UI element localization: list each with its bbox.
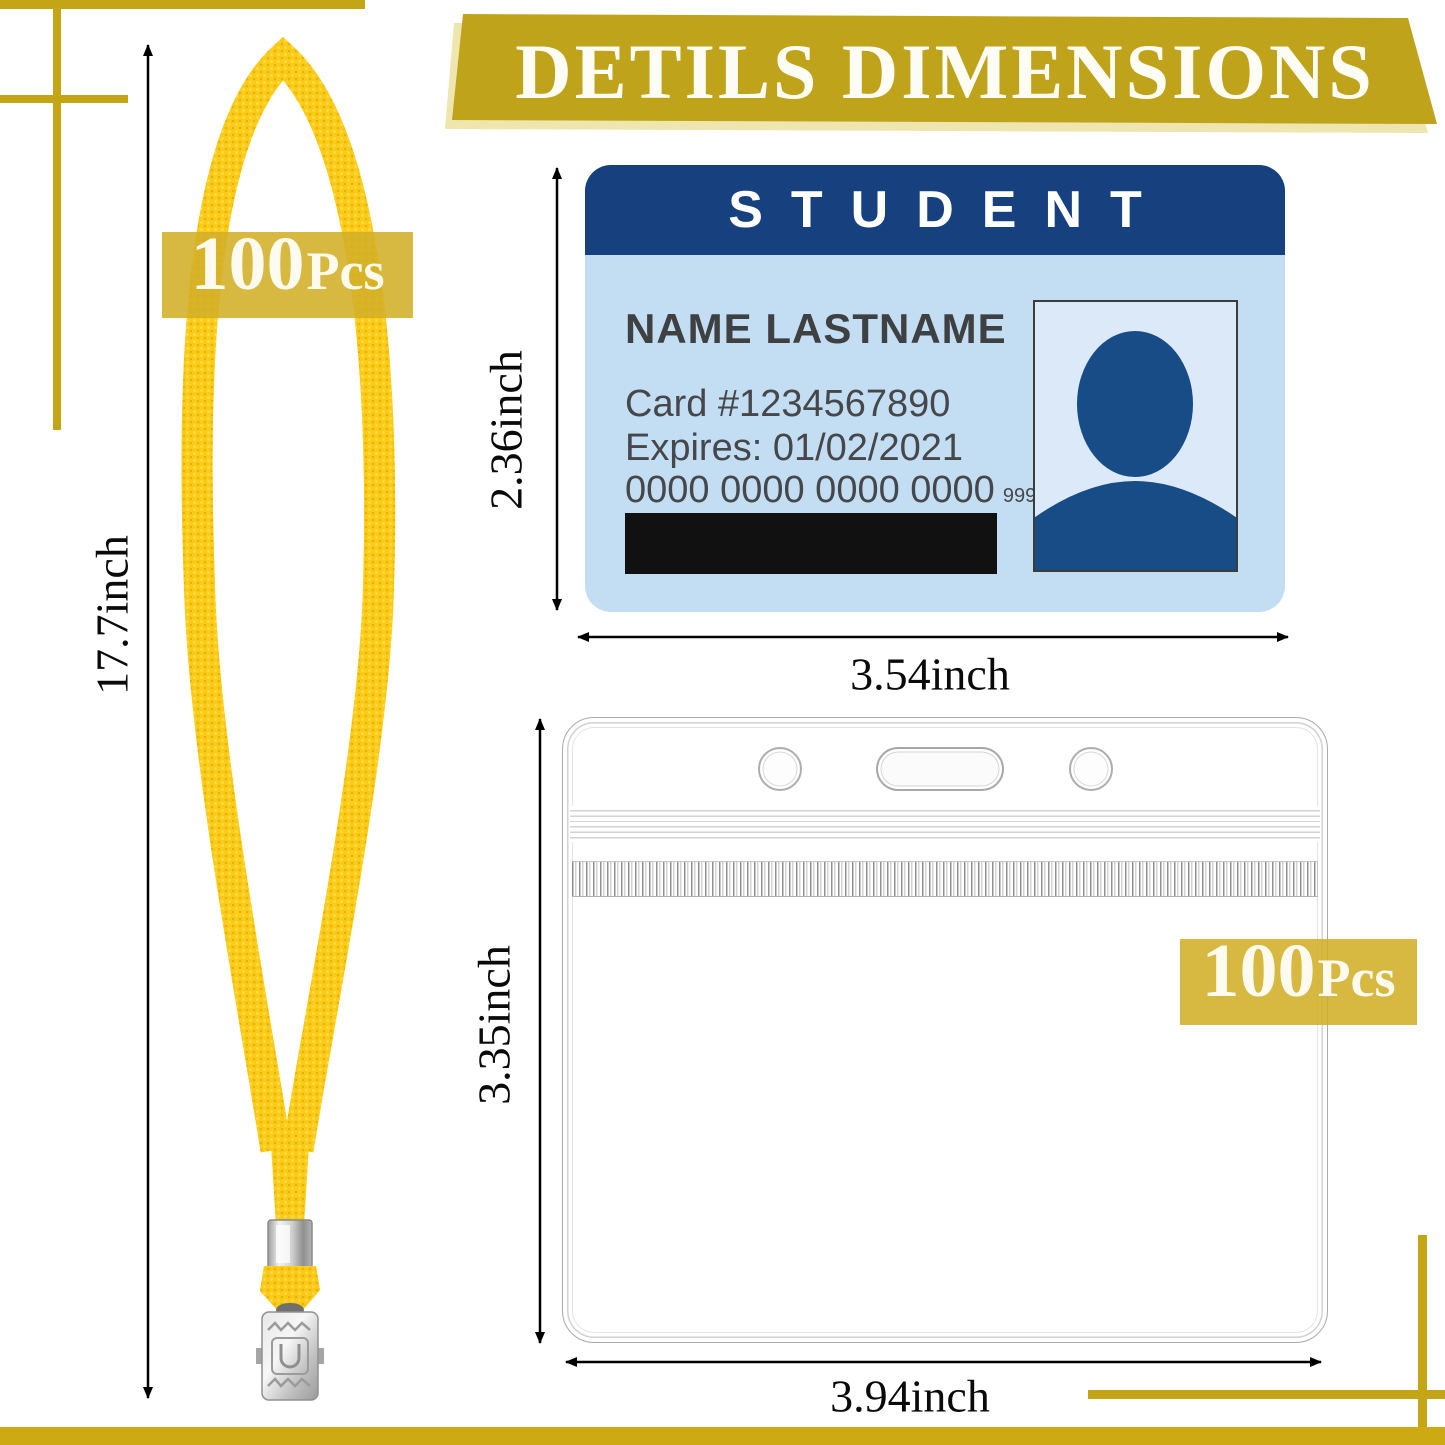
holder-quantity-unit: Pcs [1318, 951, 1396, 1005]
holder-zipper-teeth [572, 861, 1318, 897]
lanyard-length-label: 17.7inch [86, 535, 139, 695]
bottom-gold-bar [0, 1427, 1445, 1445]
card-number-text: Card #1234567890 [625, 383, 950, 426]
title-banner: DETILS DIMENSIONS [445, 8, 1445, 142]
card-height-label: 2.36inch [480, 350, 533, 510]
magnetic-stripe [625, 513, 997, 574]
holder-clip-slot [876, 747, 1004, 791]
holder-height-label: 3.35inch [468, 945, 521, 1105]
holder-width-label: 3.94inch [830, 1370, 990, 1423]
product-dimensions-image: DETILS DIMENSIONS STUDENT NAME LASTNAME … [0, 0, 1445, 1445]
lanyard-clip-icon [256, 1220, 324, 1400]
card-expires-text: Expires: 01/02/2021 [625, 427, 963, 470]
student-id-card: STUDENT NAME LASTNAME Card #1234567890 E… [585, 165, 1285, 612]
corner-line-horizontal-left [0, 95, 128, 103]
corner-line-horizontal-bottom-right [1088, 1390, 1445, 1399]
vinyl-card-holder [562, 717, 1328, 1343]
holder-hole-left [758, 747, 802, 791]
lanyard-quantity-badge: 100 Pcs [162, 232, 413, 318]
card-width-label: 3.54inch [850, 648, 1010, 701]
lanyard-quantity-unit: Pcs [307, 244, 385, 298]
card-account-text: 0000 0000 0000 0000999 [625, 469, 1036, 512]
card-cvv-text: 999 [1003, 485, 1036, 507]
page-title: DETILS DIMENSIONS [515, 27, 1374, 117]
card-header-band: STUDENT [585, 165, 1285, 255]
card-name-text: NAME LASTNAME [625, 305, 1007, 353]
photo-frame [1033, 300, 1238, 572]
holder-quantity-count: 100 [1202, 933, 1316, 1009]
avatar-icon [1035, 302, 1236, 570]
corner-line-vertical-left [53, 0, 61, 430]
card-header-text: STUDENT [700, 180, 1170, 240]
corner-line-vertical-bottom-right [1418, 1235, 1427, 1432]
card-account-digits: 0000 0000 0000 0000 [625, 469, 995, 511]
holder-quantity-badge: 100 Pcs [1180, 939, 1417, 1025]
holder-fold-lines [570, 806, 1320, 842]
holder-hole-right [1069, 747, 1113, 791]
lanyard-quantity-count: 100 [191, 226, 305, 302]
